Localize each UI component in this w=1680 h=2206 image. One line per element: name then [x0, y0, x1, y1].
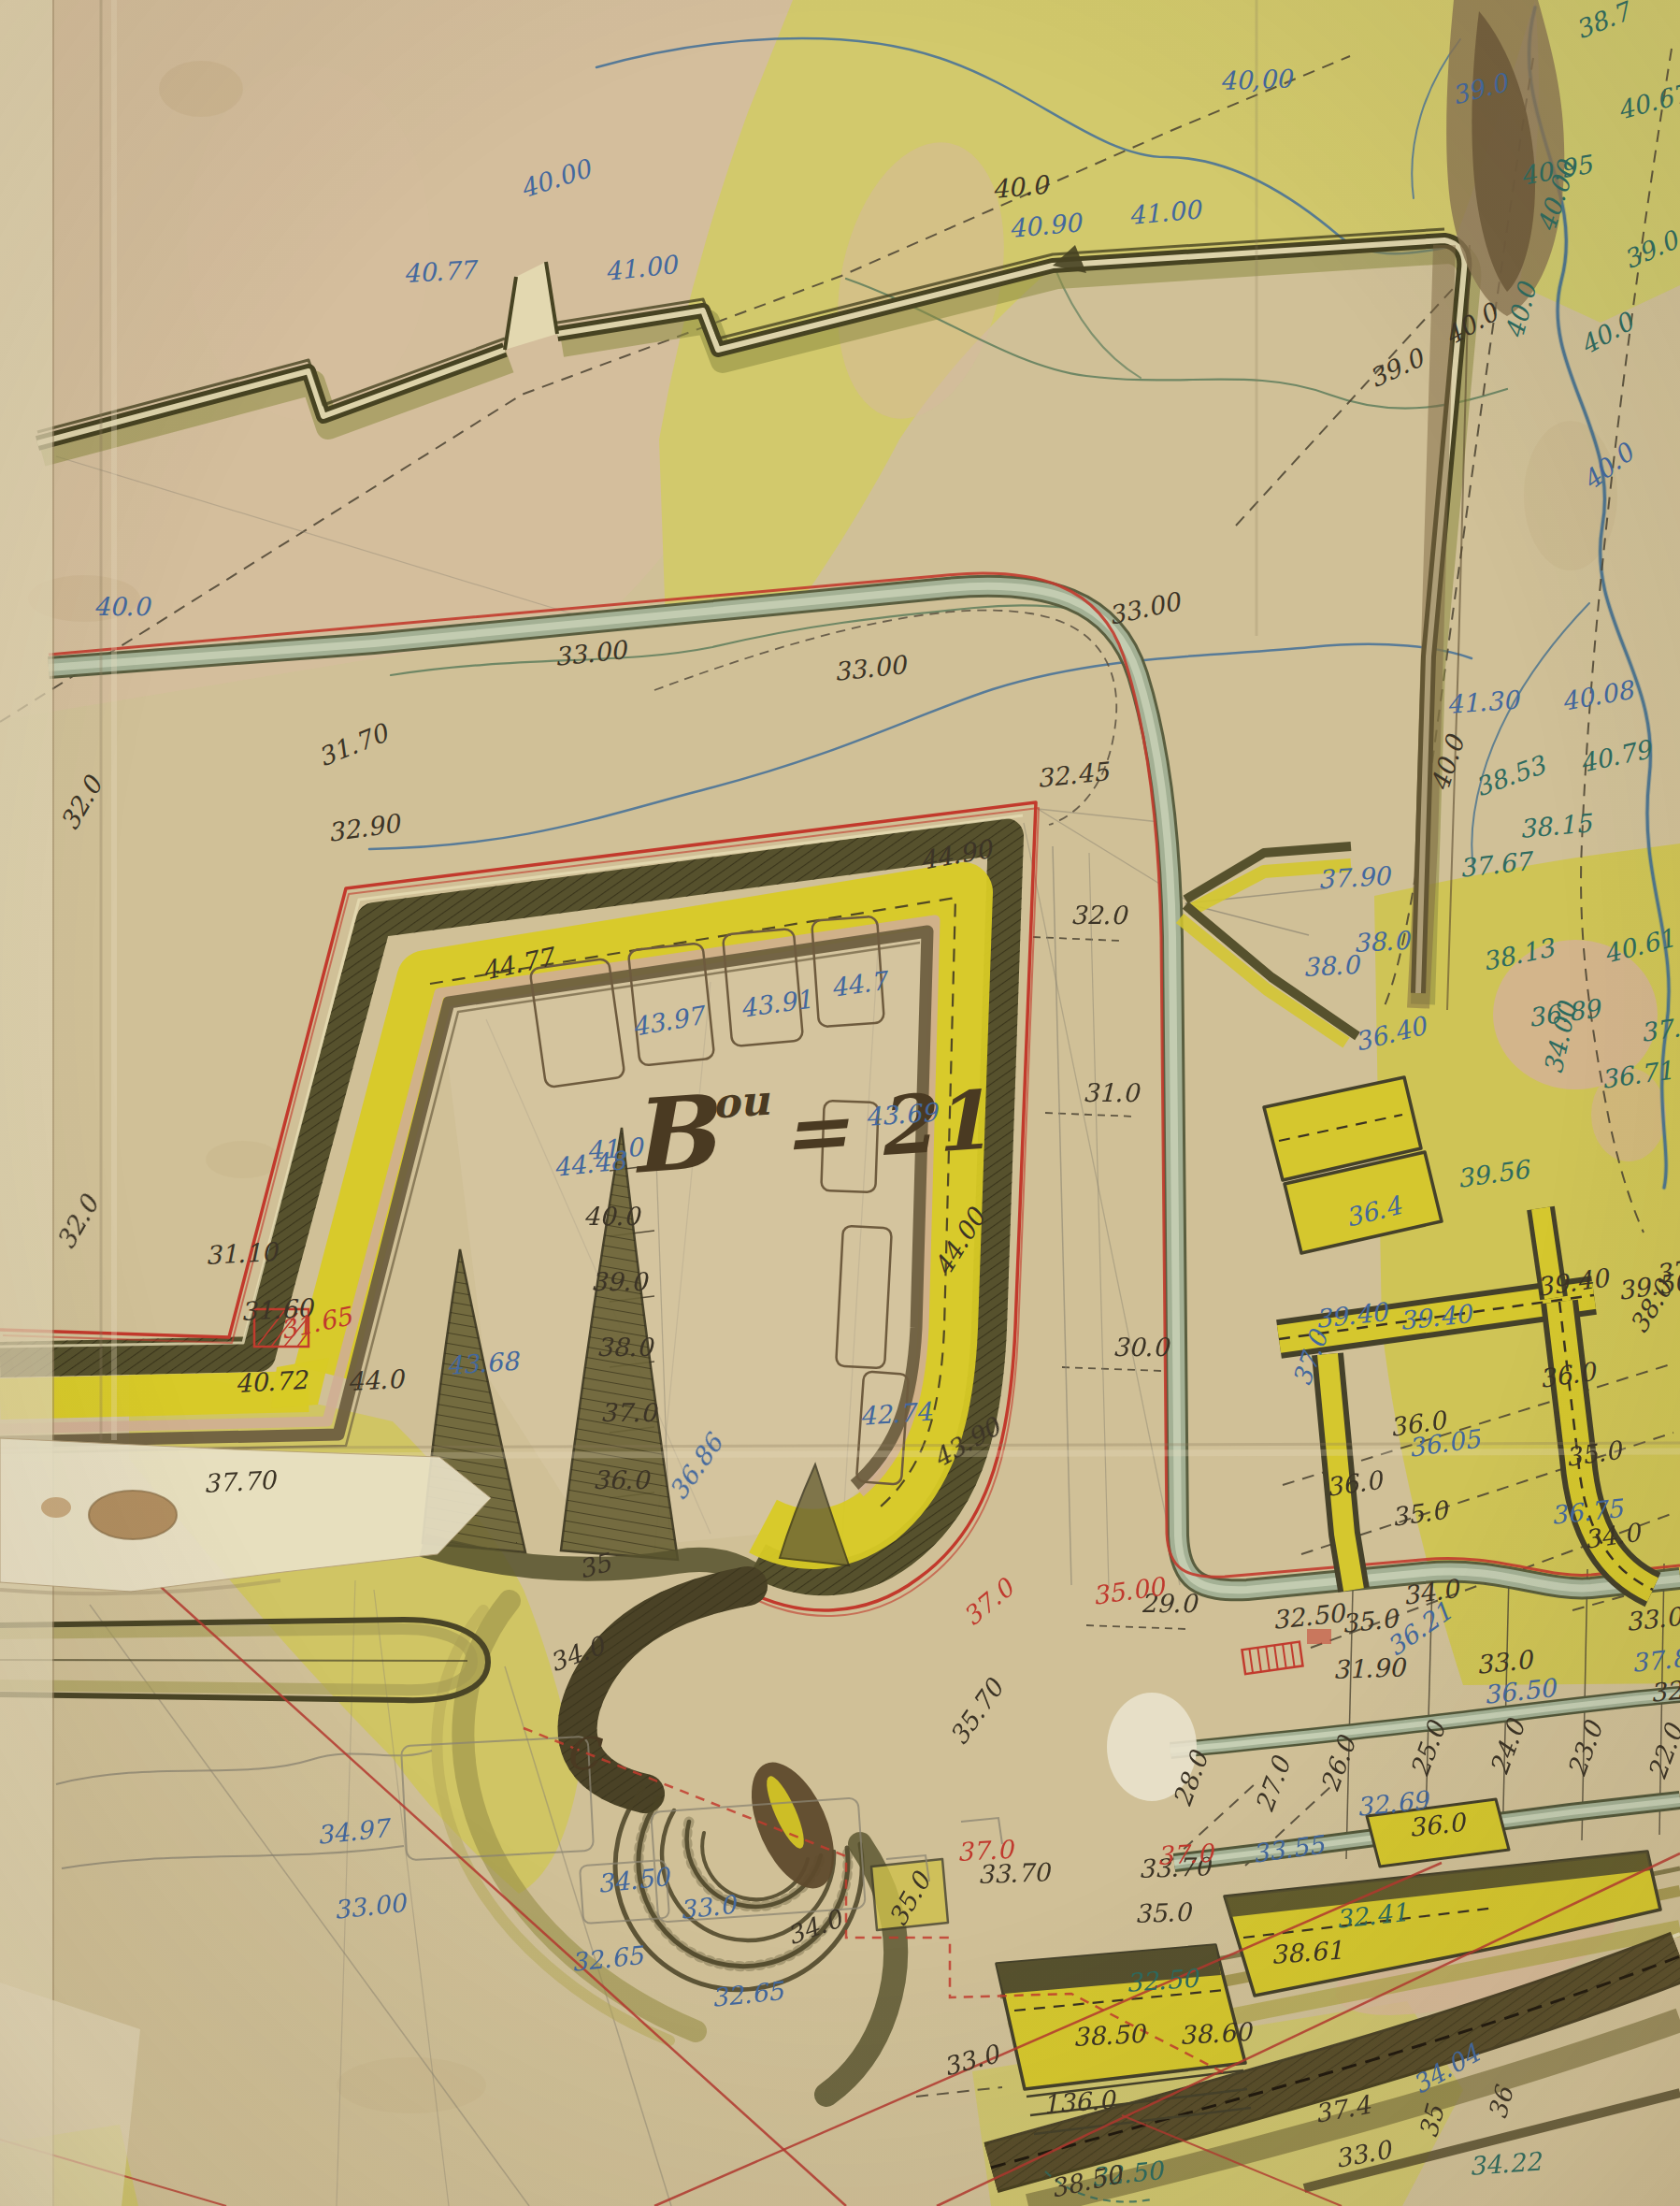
vignette-overlay — [0, 0, 1680, 2206]
fortification-map-svg: Bou= 21 C 40.0040.040.7741.0040.040,0040… — [0, 0, 1680, 2206]
map-sheet: Bou= 21 C 40.0040.040.7741.0040.040,0040… — [0, 0, 1680, 2206]
